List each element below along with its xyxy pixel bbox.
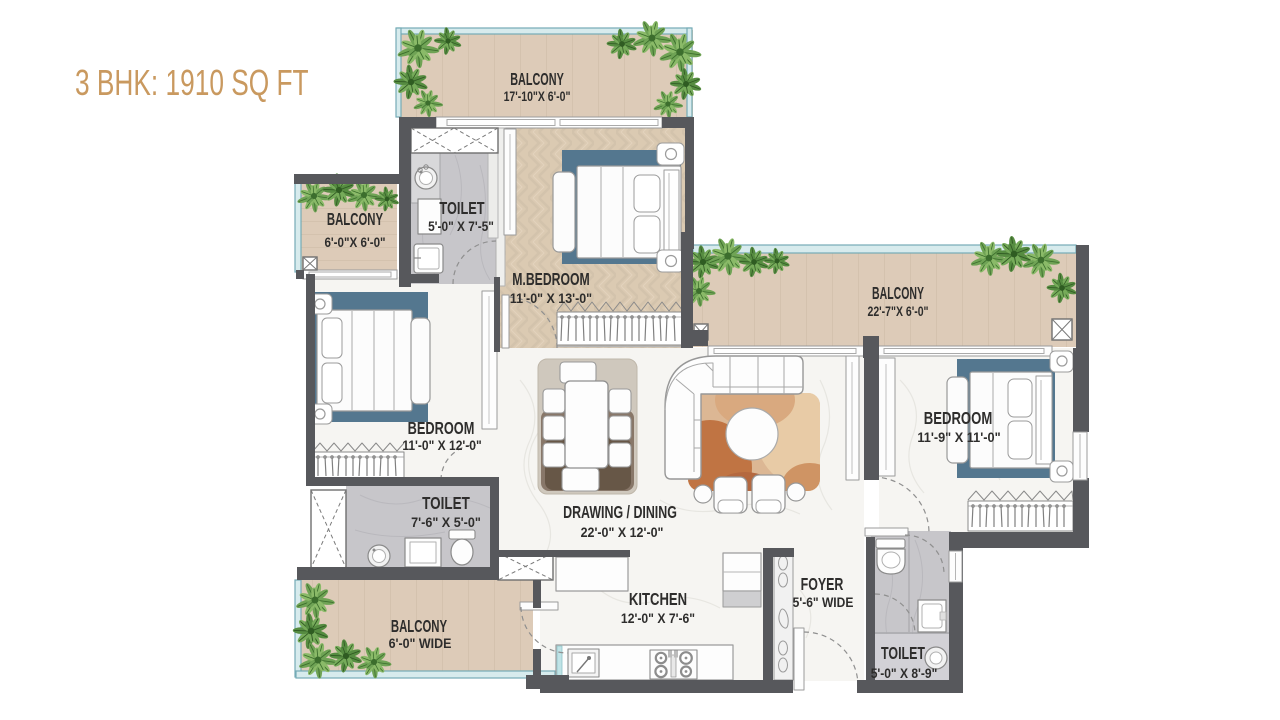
svg-text:M.BEDROOM: M.BEDROOM [512, 270, 590, 290]
svg-text:17'-10"X 6'-0": 17'-10"X 6'-0" [504, 89, 571, 105]
svg-text:3 BHK: 1910 SQ FT: 3 BHK: 1910 SQ FT [75, 62, 309, 103]
svg-text:TOILET: TOILET [881, 644, 925, 664]
svg-text:22'-0" X 12'-0": 22'-0" X 12'-0" [581, 524, 664, 540]
svg-text:6'-0"X 6'-0": 6'-0"X 6'-0" [324, 234, 385, 250]
svg-text:5'-0" X 8'-9": 5'-0" X 8'-9" [871, 665, 938, 681]
svg-text:7'-6" X 5'-0": 7'-6" X 5'-0" [411, 514, 481, 530]
svg-text:TOILET: TOILET [439, 199, 485, 218]
svg-text:5'-6" WIDE: 5'-6" WIDE [793, 594, 854, 610]
svg-text:TOILET: TOILET [422, 494, 470, 513]
svg-text:11'-0" X 13'-0": 11'-0" X 13'-0" [510, 290, 592, 306]
svg-text:5'-0" X 7'-5": 5'-0" X 7'-5" [428, 218, 494, 234]
svg-text:11'-0" X 12'-0": 11'-0" X 12'-0" [402, 437, 481, 453]
svg-text:BALCONY: BALCONY [872, 284, 924, 303]
svg-text:BALCONY: BALCONY [327, 211, 383, 230]
svg-text:KITCHEN: KITCHEN [629, 590, 687, 609]
svg-text:6'-0" WIDE: 6'-0" WIDE [389, 635, 452, 651]
svg-text:12'-0" X 7'-6": 12'-0" X 7'-6" [621, 610, 695, 626]
svg-text:BALCONY: BALCONY [510, 71, 564, 90]
svg-text:BEDROOM: BEDROOM [408, 419, 475, 438]
svg-text:BALCONY: BALCONY [391, 618, 447, 637]
svg-text:22'-7"X 6'-0": 22'-7"X 6'-0" [867, 304, 928, 320]
svg-text:FOYER: FOYER [801, 575, 844, 595]
svg-text:DRAWING / DINING: DRAWING / DINING [563, 503, 677, 523]
svg-text:11'-9" X 11'-0": 11'-9" X 11'-0" [917, 429, 1000, 445]
svg-text:BEDROOM: BEDROOM [924, 409, 992, 428]
